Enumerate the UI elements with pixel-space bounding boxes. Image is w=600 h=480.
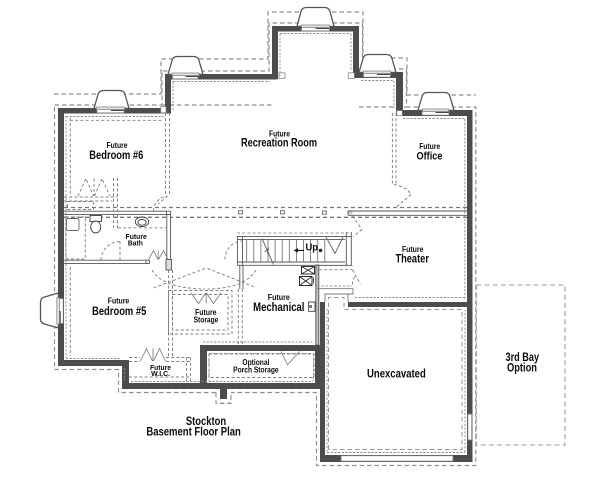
- svg-text:Theater: Theater: [395, 254, 429, 266]
- svg-text:Storage: Storage: [194, 316, 219, 325]
- svg-text:Unexcavated: Unexcavated: [367, 367, 426, 381]
- svg-text:Bedroom #5: Bedroom #5: [92, 304, 147, 318]
- svg-text:W.I.C.: W.I.C.: [151, 369, 170, 378]
- svg-text:Porch Storage: Porch Storage: [233, 366, 279, 375]
- svg-text:Mechanical: Mechanical: [253, 300, 304, 314]
- svg-text:Up: Up: [305, 242, 318, 254]
- svg-text:Office: Office: [417, 151, 443, 163]
- svg-text:Bedroom #6: Bedroom #6: [89, 148, 143, 162]
- svg-text:Bath: Bath: [128, 239, 143, 248]
- svg-text:Recreation Room: Recreation Room: [241, 136, 317, 150]
- svg-text:Basement Floor Plan: Basement Floor Plan: [146, 424, 241, 438]
- svg-text:Option: Option: [507, 363, 537, 375]
